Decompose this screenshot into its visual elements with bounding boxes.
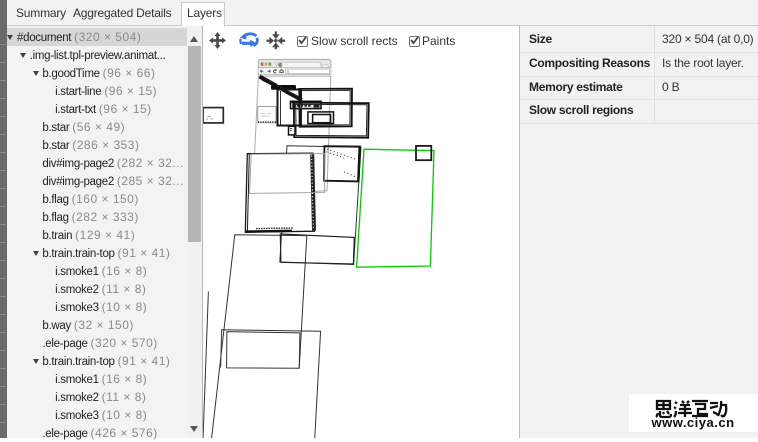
svg-text:www.ciya.cn: www.ciya.cn bbox=[650, 415, 734, 430]
